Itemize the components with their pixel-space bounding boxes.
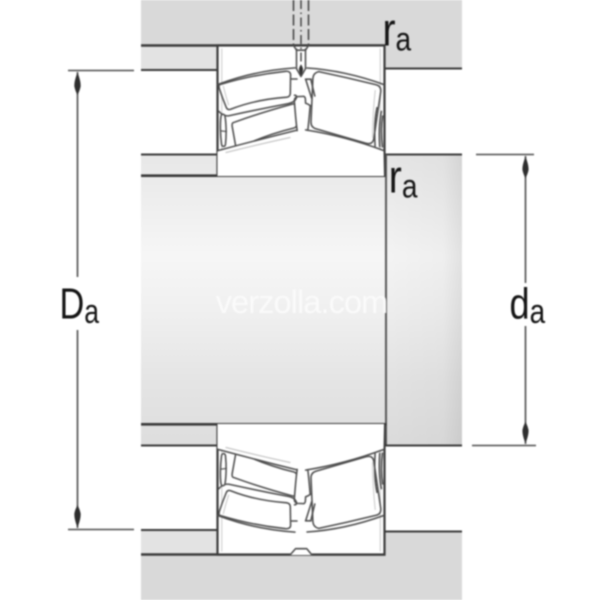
svg-text:verzolla.com: verzolla.com	[216, 284, 388, 320]
